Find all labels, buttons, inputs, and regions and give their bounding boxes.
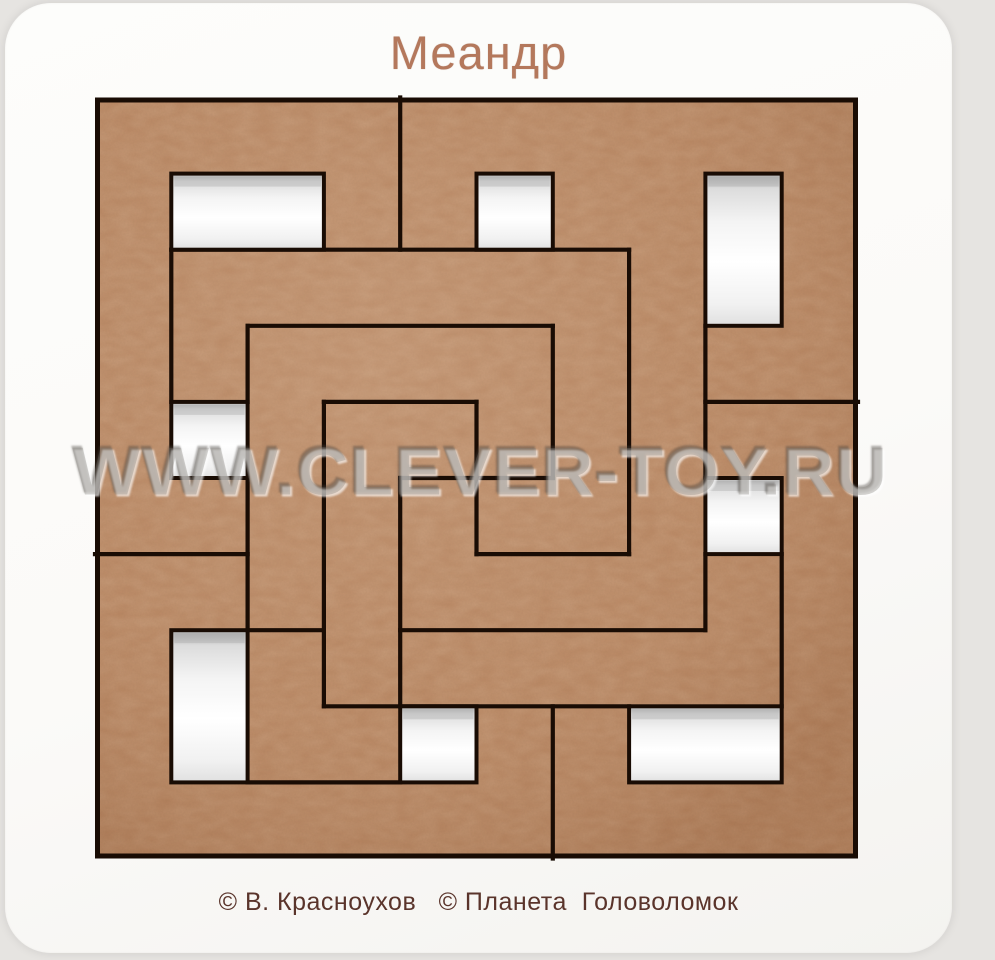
puzzle-hole-inner-shadow: [174, 405, 244, 415]
puzzle-hole-inner-shadow: [708, 481, 778, 491]
puzzle-board: Меандр: [5, 3, 952, 953]
puzzle-hole-inner-shadow: [708, 177, 778, 187]
puzzle-hole: [705, 174, 781, 326]
puzzle-hole-inner-shadow: [174, 633, 244, 643]
puzzle-hole: [171, 630, 247, 782]
puzzle-product-photo: Меандр: [0, 0, 995, 960]
puzzle-hole-inner-shadow: [632, 709, 779, 719]
puzzle-title: Меандр: [5, 25, 952, 80]
puzzle-hole-inner-shadow: [403, 709, 473, 719]
credits-text: © В. Красноухов © Планета Головоломок: [5, 888, 952, 917]
puzzle-hole-inner-shadow: [480, 177, 550, 187]
puzzle-hole-inner-shadow: [174, 177, 321, 187]
puzzle-field: [95, 97, 858, 859]
